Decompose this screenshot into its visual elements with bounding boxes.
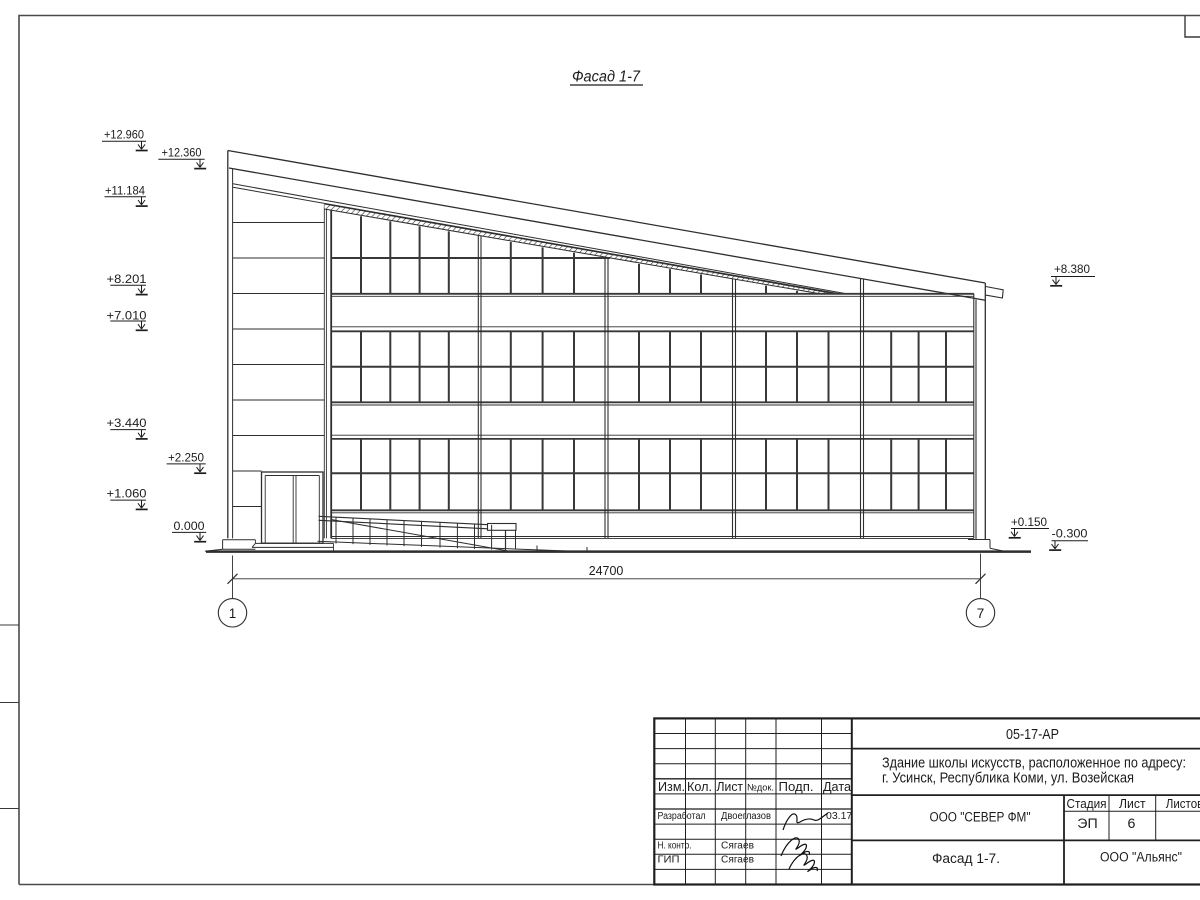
svg-text:7: 7 xyxy=(977,606,985,621)
svg-text:Сягаев: Сягаев xyxy=(721,855,754,866)
svg-text:№док.: №док. xyxy=(747,782,774,793)
svg-text:Разработал: Разработал xyxy=(658,811,706,822)
svg-text:+12.360: +12.360 xyxy=(162,148,202,160)
svg-text:Лист: Лист xyxy=(1119,796,1146,811)
svg-text:Н. контр.: Н. контр. xyxy=(658,840,692,851)
svg-text:+1.060: +1.060 xyxy=(107,489,147,501)
svg-text:ООО "СЕВЕР ФМ": ООО "СЕВЕР ФМ" xyxy=(930,810,1031,826)
svg-text:+8.380: +8.380 xyxy=(1054,264,1090,276)
svg-text:Двоеглазов: Двоеглазов xyxy=(721,811,771,822)
svg-text:Дата: Дата xyxy=(823,779,852,794)
svg-text:+12.960: +12.960 xyxy=(104,130,144,142)
svg-text:1: 1 xyxy=(229,606,237,621)
svg-text:Стадия: Стадия xyxy=(1067,796,1107,811)
svg-text:+8.201: +8.201 xyxy=(107,274,147,286)
svg-text:г. Усинск, Республика Коми, ул: г. Усинск, Республика Коми, ул. Возейска… xyxy=(882,770,1134,786)
svg-text:Фасад 1-7.: Фасад 1-7. xyxy=(932,851,1000,867)
svg-text:Кол.: Кол. xyxy=(687,779,712,794)
svg-text:-0.300: -0.300 xyxy=(1052,528,1088,540)
svg-text:05-17-АР: 05-17-АР xyxy=(1006,727,1059,743)
svg-text:+0.150: +0.150 xyxy=(1011,517,1047,529)
svg-text:Здание школы искусств, располо: Здание школы искусств, расположенное по … xyxy=(882,755,1186,771)
svg-text:ЭП: ЭП xyxy=(1077,816,1097,832)
svg-text:0.000: 0.000 xyxy=(174,521,205,533)
svg-text:ООО "Альянс": ООО "Альянс" xyxy=(1100,850,1182,866)
svg-text:+11.184: +11.184 xyxy=(105,185,146,197)
svg-text:Листов: Листов xyxy=(1166,796,1200,811)
svg-text:6: 6 xyxy=(1128,816,1136,832)
svg-text:ГИП: ГИП xyxy=(658,855,680,866)
svg-text:24700: 24700 xyxy=(589,563,624,578)
svg-text:+3.440: +3.440 xyxy=(107,418,147,430)
svg-text:+2.250: +2.250 xyxy=(168,453,204,465)
svg-text:Сягаев: Сягаев xyxy=(721,840,754,851)
svg-text:Фасад 1-7: Фасад 1-7 xyxy=(572,69,641,86)
svg-text:Лист: Лист xyxy=(717,779,744,794)
svg-text:03.17: 03.17 xyxy=(826,810,852,822)
svg-text:Подп.: Подп. xyxy=(779,779,814,794)
svg-text:Изм.: Изм. xyxy=(658,779,685,794)
